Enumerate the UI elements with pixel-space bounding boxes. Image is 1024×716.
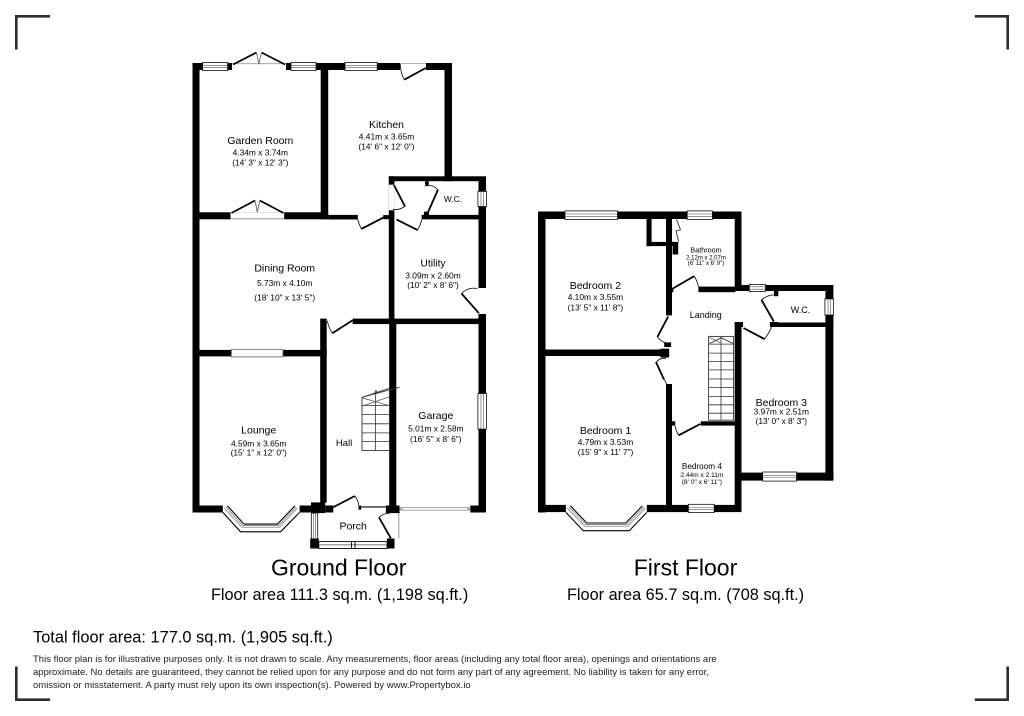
svg-text:Landing: Landing (690, 310, 722, 320)
svg-text:Porch: Porch (339, 520, 367, 532)
svg-text:(15' 1" x 12' 0"): (15' 1" x 12' 0") (231, 448, 287, 458)
svg-text:Bedroom 4: Bedroom 4 (682, 462, 722, 471)
svg-text:4.10m x 3.55m: 4.10m x 3.55m (568, 292, 623, 302)
svg-text:Garage: Garage (418, 410, 453, 422)
svg-text:(13' 5" x 11' 8"): (13' 5" x 11' 8") (568, 303, 624, 313)
svg-text:Ground Floor: Ground Floor (271, 555, 407, 581)
svg-text:Total floor area: 177.0 sq.m.: Total floor area: 177.0 sq.m. (1,905 sq.… (33, 629, 333, 647)
svg-text:Bedroom 1: Bedroom 1 (580, 425, 632, 437)
svg-text:Dining Room: Dining Room (254, 263, 315, 275)
svg-text:(10' 2" x 8' 6"): (10' 2" x 8' 6") (407, 280, 459, 290)
svg-text:W.C.: W.C. (791, 305, 811, 315)
svg-text:(14' 3" x 12' 3"): (14' 3" x 12' 3") (232, 158, 288, 168)
svg-text:5.73m x 4.10m: 5.73m x 4.10m (257, 278, 312, 288)
svg-text:(13' 0" x 8' 3"): (13' 0" x 8' 3") (756, 416, 808, 426)
svg-text:Garden Room: Garden Room (227, 135, 293, 147)
svg-text:5.01m x 2.58m: 5.01m x 2.58m (408, 423, 463, 433)
svg-text:Bathroom: Bathroom (690, 246, 721, 255)
svg-text:Bedroom 2: Bedroom 2 (570, 280, 622, 292)
svg-text:Lounge: Lounge (241, 425, 276, 437)
svg-text:4.34m x 3.74m: 4.34m x 3.74m (233, 148, 288, 158)
svg-text:(16' 5" x 8' 6"): (16' 5" x 8' 6") (410, 434, 462, 444)
svg-text:(18' 10" x 13' 5"): (18' 10" x 13' 5") (254, 293, 315, 303)
svg-text:W.C.: W.C. (444, 194, 462, 204)
svg-text:This floor plan is for illustr: This floor plan is for illustrative purp… (33, 654, 717, 665)
svg-text:4.41m x 3.65m: 4.41m x 3.65m (359, 131, 414, 141)
svg-text:2.44m x 2.11m: 2.44m x 2.11m (680, 472, 724, 479)
svg-text:Floor area 65.7 sq.m. (708 sq.: Floor area 65.7 sq.m. (708 sq.ft.) (567, 586, 804, 604)
svg-text:(6' 11" x 6' 9"): (6' 11" x 6' 9") (688, 261, 724, 267)
svg-text:Floor area 111.3 sq.m. (1,198: Floor area 111.3 sq.m. (1,198 sq.ft.) (211, 586, 468, 604)
svg-text:First Floor: First Floor (634, 555, 738, 581)
svg-text:Kitchen: Kitchen (369, 119, 404, 131)
svg-text:Hall: Hall (336, 438, 352, 449)
svg-text:omission or misstatement. A pa: omission or misstatement. A party must r… (33, 680, 471, 691)
svg-text:approximate. No details are gu: approximate. No details are guaranteed, … (33, 667, 709, 678)
svg-text:(15' 9" x 11' 7"): (15' 9" x 11' 7") (578, 447, 634, 457)
svg-text:(8' 0" x 6' 11"): (8' 0" x 6' 11") (682, 479, 722, 486)
svg-text:4.79m x 3.53m: 4.79m x 3.53m (578, 437, 633, 447)
svg-text:(14' 6" x 12' 0"): (14' 6" x 12' 0") (358, 142, 414, 152)
svg-text:Utility: Utility (420, 259, 446, 270)
svg-text:3.09m x 2.60m: 3.09m x 2.60m (405, 270, 460, 280)
